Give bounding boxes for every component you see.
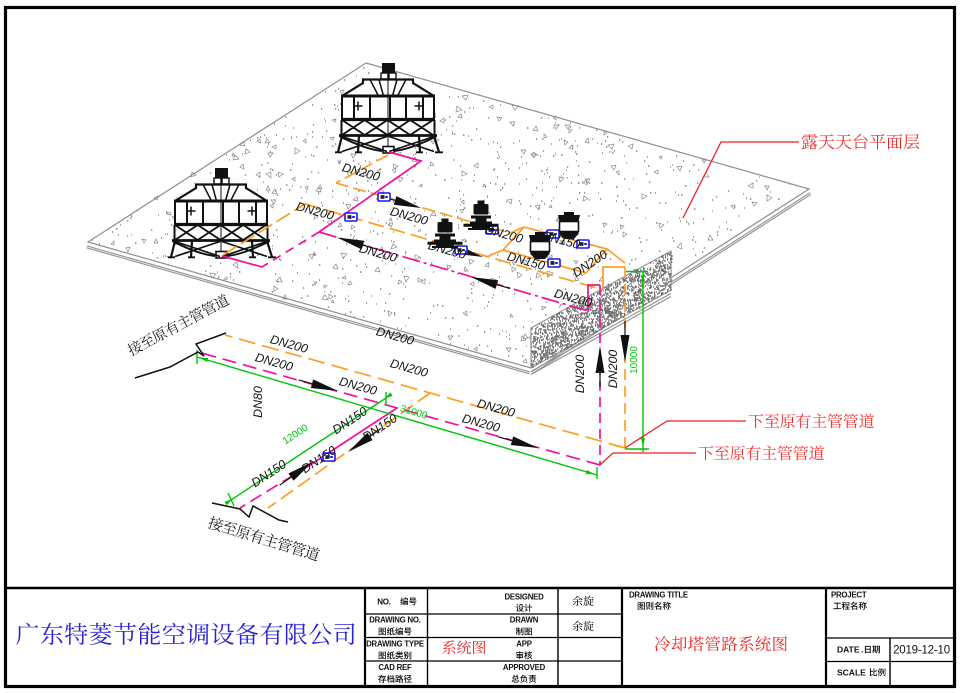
svg-text:NO.: NO. — [377, 598, 391, 607]
svg-text:DATE: DATE — [837, 645, 860, 655]
svg-text:DN80: DN80 — [251, 386, 265, 418]
svg-text:DRAWING TITLE: DRAWING TITLE — [629, 591, 688, 600]
svg-text:2019-12-10: 2019-12-10 — [893, 645, 950, 657]
svg-text:DN200: DN200 — [606, 350, 620, 389]
svg-text:DRAWING TYPE: DRAWING TYPE — [366, 640, 424, 649]
svg-text:PROJECT: PROJECT — [831, 591, 867, 600]
svg-text:SCALE: SCALE — [837, 668, 866, 678]
svg-text:DESIGNED: DESIGNED — [504, 593, 544, 602]
svg-text:DRAWN: DRAWN — [510, 616, 539, 625]
svg-text:APP: APP — [516, 640, 531, 649]
svg-text:10000: 10000 — [629, 346, 640, 374]
svg-text:DRAWING NO.: DRAWING NO. — [369, 616, 421, 625]
svg-text:DN200: DN200 — [573, 355, 587, 394]
svg-text:APPROVED: APPROVED — [503, 663, 546, 672]
svg-text:CAD REF: CAD REF — [378, 663, 412, 672]
